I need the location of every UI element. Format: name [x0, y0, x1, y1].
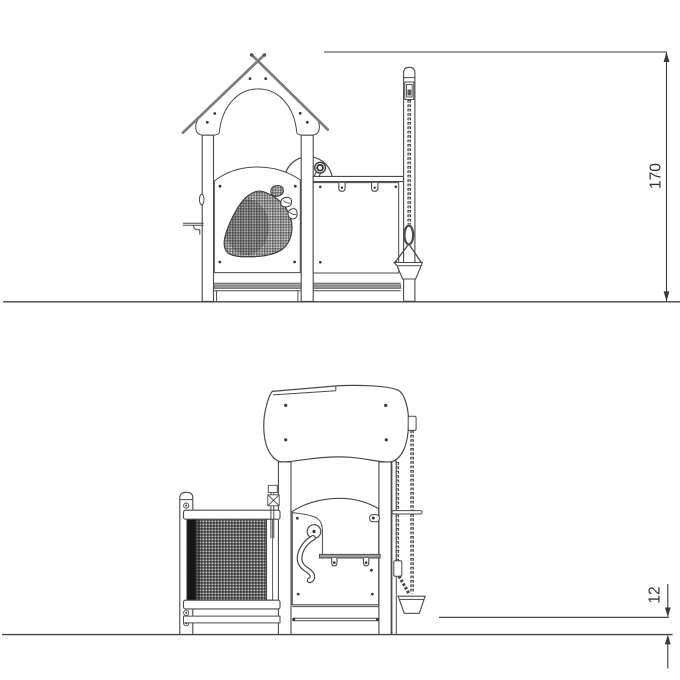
- svg-text:170: 170: [648, 163, 665, 189]
- svg-text:12: 12: [647, 586, 664, 603]
